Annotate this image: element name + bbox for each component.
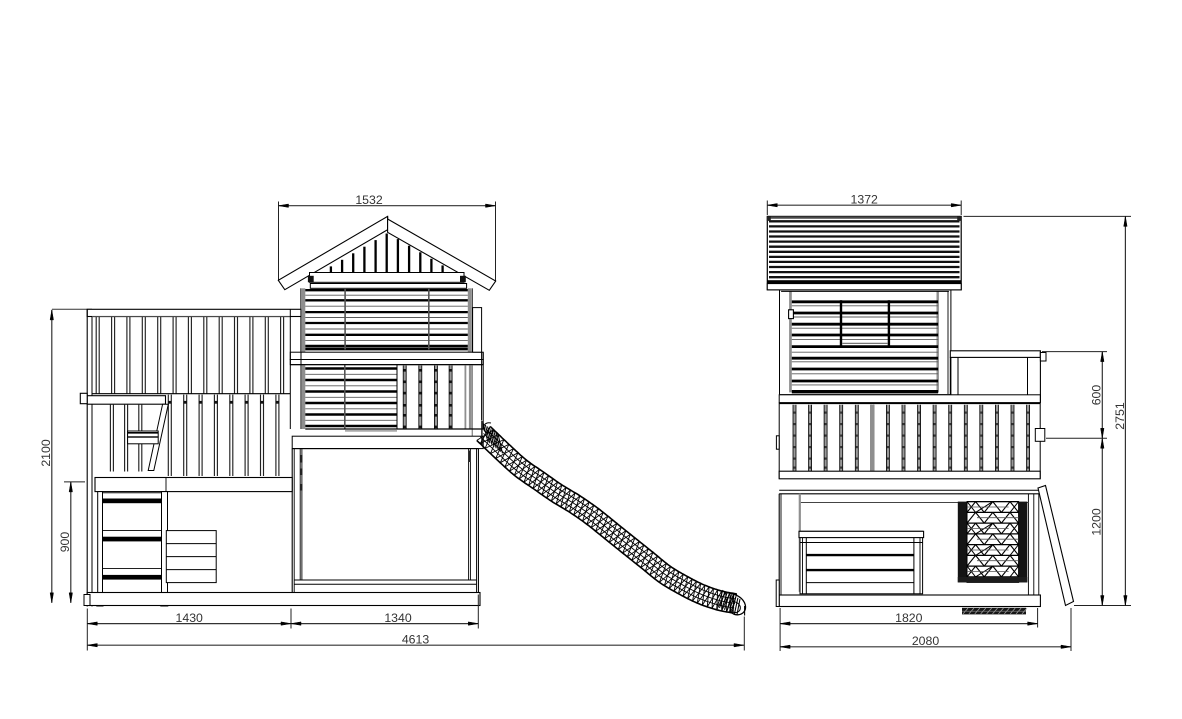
svg-text:1532: 1532 (355, 193, 383, 207)
svg-text:2080: 2080 (912, 634, 940, 648)
svg-text:1430: 1430 (176, 611, 204, 625)
svg-text:1820: 1820 (895, 611, 923, 625)
svg-text:2100: 2100 (39, 439, 53, 467)
svg-text:1372: 1372 (851, 193, 879, 207)
svg-text:900: 900 (58, 532, 72, 553)
svg-text:1200: 1200 (1090, 508, 1104, 536)
svg-text:600: 600 (1090, 385, 1104, 406)
svg-text:2751: 2751 (1113, 402, 1127, 430)
svg-text:1340: 1340 (384, 611, 412, 625)
svg-text:4613: 4613 (402, 633, 430, 647)
